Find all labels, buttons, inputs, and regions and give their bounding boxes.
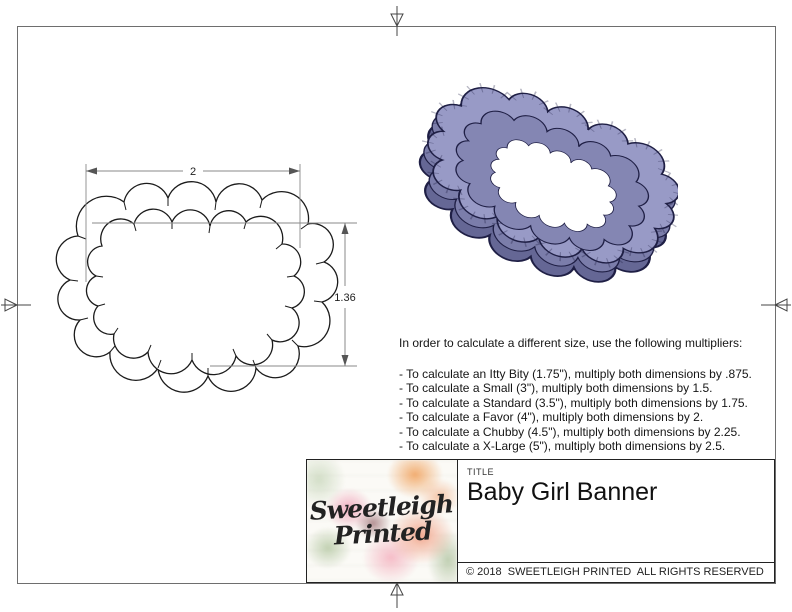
multiplier-item: - To calculate a Chubby (4.5"), multiply… — [399, 425, 777, 439]
multiplier-item: - To calculate a Small (3"), multiply bo… — [399, 381, 777, 395]
title-field-label: TITLE — [458, 460, 774, 477]
sizing-instructions: In order to calculate a different size, … — [399, 336, 777, 453]
dimension-width: 2 — [86, 166, 300, 178]
title-block-fields: TITLE Baby Girl Banner © 2018 SWEETLEIGH… — [458, 460, 774, 582]
center-mark-right-icon — [759, 297, 791, 313]
center-mark-bottom-icon — [389, 582, 405, 610]
center-mark-top-icon — [389, 6, 405, 38]
multiplier-item: - To calculate an Itty Bity (1.75"), mul… — [399, 367, 777, 381]
instructions-heading: In order to calculate a different size, … — [399, 336, 777, 350]
multiplier-item: - To calculate a Standard (3.5"), multip… — [399, 396, 777, 410]
page-title: Baby Girl Banner — [458, 477, 774, 507]
multiplier-item: - To calculate a X-Large (5"), multiply … — [399, 439, 777, 453]
title-block: Sweetleigh Printed TITLE Baby Girl Banne… — [306, 459, 775, 583]
dimensioned-outline-drawing: 2 1.36 — [40, 140, 380, 410]
logo-sweetleigh-printed: Sweetleigh Printed — [307, 460, 458, 582]
drawing-sheet: 2 1.36 In order to calculate a different… — [0, 0, 792, 612]
inner-contour — [86, 209, 304, 374]
copyright-notice: © 2018 SWEETLEIGH PRINTED ALL RIGHTS RES… — [458, 562, 774, 582]
logo-line-2: Printed — [333, 518, 432, 549]
multiplier-item: - To calculate a Favor (4"), multiply bo… — [399, 410, 777, 424]
dimension-height-label: 1.36 — [334, 292, 355, 304]
logo-wordmark: Sweetleigh Printed — [307, 460, 458, 582]
center-mark-left-icon — [1, 297, 33, 313]
dimension-width-label: 2 — [190, 166, 196, 178]
cutter-3d-render — [408, 48, 678, 308]
dimension-height: 1.36 — [334, 223, 355, 366]
